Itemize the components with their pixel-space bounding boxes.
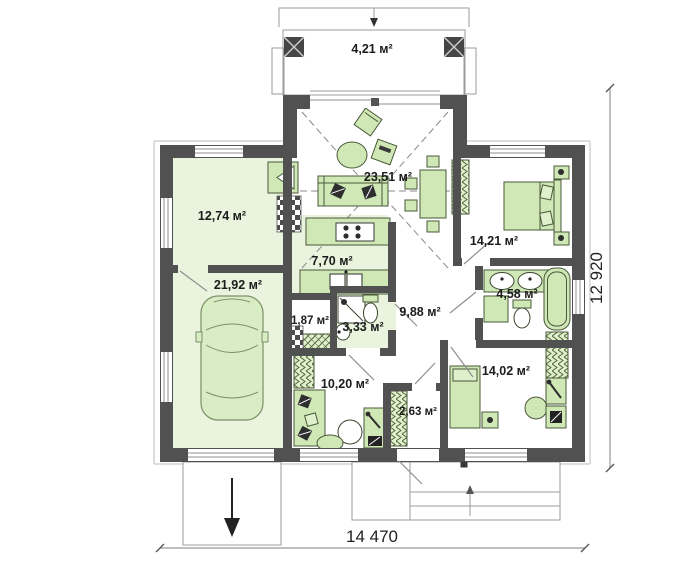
- terrace-area-label: 4,21 м²: [351, 42, 392, 56]
- window: [195, 146, 243, 157]
- garage-furniture: [196, 296, 268, 420]
- lounge-chair: [354, 108, 382, 136]
- wardrobe: [294, 354, 314, 388]
- door-opening: [448, 340, 476, 348]
- door-opening: [475, 290, 483, 318]
- bedroom-1-furniture: [452, 160, 569, 245]
- floor-plan-canvas: 4,21 м² 23,51 м² 12,74 м² 21,92 м² 14,21…: [0, 0, 700, 575]
- chair: [525, 397, 547, 419]
- roof-arrow-icon: [370, 18, 378, 27]
- door-opening: [346, 348, 380, 356]
- window: [573, 280, 584, 314]
- dining-table: [405, 156, 446, 232]
- window: [161, 198, 172, 248]
- garage-area-label: 21,92 м²: [214, 278, 262, 292]
- door-opening: [388, 302, 396, 330]
- desk: [364, 408, 386, 448]
- car-mirror-icon: [262, 332, 268, 342]
- window: [161, 352, 172, 402]
- bathroom-2-area-label: 3,33 м²: [342, 320, 383, 334]
- entry-door-opening: [397, 449, 439, 461]
- garage-door: [188, 449, 274, 461]
- pantry-area-label: 1,87 м²: [291, 315, 329, 327]
- dimension-bottom: 14 470: [156, 527, 589, 552]
- dimension-right: 12 920: [587, 84, 614, 472]
- bedroom-3-area-label: 10,20 м²: [321, 377, 369, 391]
- wardrobe: [546, 332, 568, 378]
- cooktop-icon: [336, 223, 374, 241]
- toilet-icon: [513, 300, 531, 328]
- window: [490, 146, 545, 157]
- driveway: [183, 462, 281, 545]
- driveway-arrow-icon: [224, 518, 240, 537]
- hallway-area-label: 9,88 м²: [399, 305, 440, 319]
- armchair: [337, 142, 367, 168]
- bedroom-3-furniture: [294, 354, 386, 451]
- lamp-icon: [558, 169, 564, 175]
- car-mirror-icon: [196, 332, 202, 342]
- shower-icon: [338, 296, 365, 323]
- vestibule-area-label: 2,63 м²: [399, 406, 437, 418]
- car: [196, 296, 268, 420]
- tv-stand: [371, 139, 397, 165]
- terrace-column-icon: [284, 37, 304, 57]
- living-room-area-label: 23,51 м²: [364, 170, 412, 184]
- steps-arrow-icon: [466, 485, 474, 494]
- window: [465, 449, 527, 461]
- lamp-icon: [487, 417, 493, 423]
- lamp-icon: [558, 235, 564, 241]
- bedroom-1-area-label: 14,21 м²: [470, 234, 518, 248]
- bathroom-1-area-label: 4,58 м²: [496, 287, 537, 301]
- utility-room-area-label: 12,74 м²: [198, 209, 246, 223]
- kitchen-island: [306, 218, 390, 245]
- overall-height-label: 12 920: [587, 252, 606, 304]
- single-bed: [450, 366, 480, 428]
- desk: [546, 378, 566, 428]
- kitchen-area-label: 7,70 м²: [311, 254, 352, 268]
- double-bed: [504, 180, 561, 232]
- overall-width-label: 14 470: [346, 527, 398, 546]
- window: [300, 449, 358, 461]
- toilet-icon: [363, 295, 378, 323]
- door-opening: [178, 265, 208, 273]
- terrace-column-icon: [444, 37, 464, 57]
- floor-plan-page: 4,21 м² 23,51 м² 12,74 м² 21,92 м² 14,21…: [0, 0, 700, 575]
- terrace-slab: [283, 30, 465, 95]
- bathtub: [544, 268, 570, 330]
- bedroom-2-area-label: 14,02 м²: [482, 364, 530, 378]
- sliding-glass-door: [310, 96, 440, 108]
